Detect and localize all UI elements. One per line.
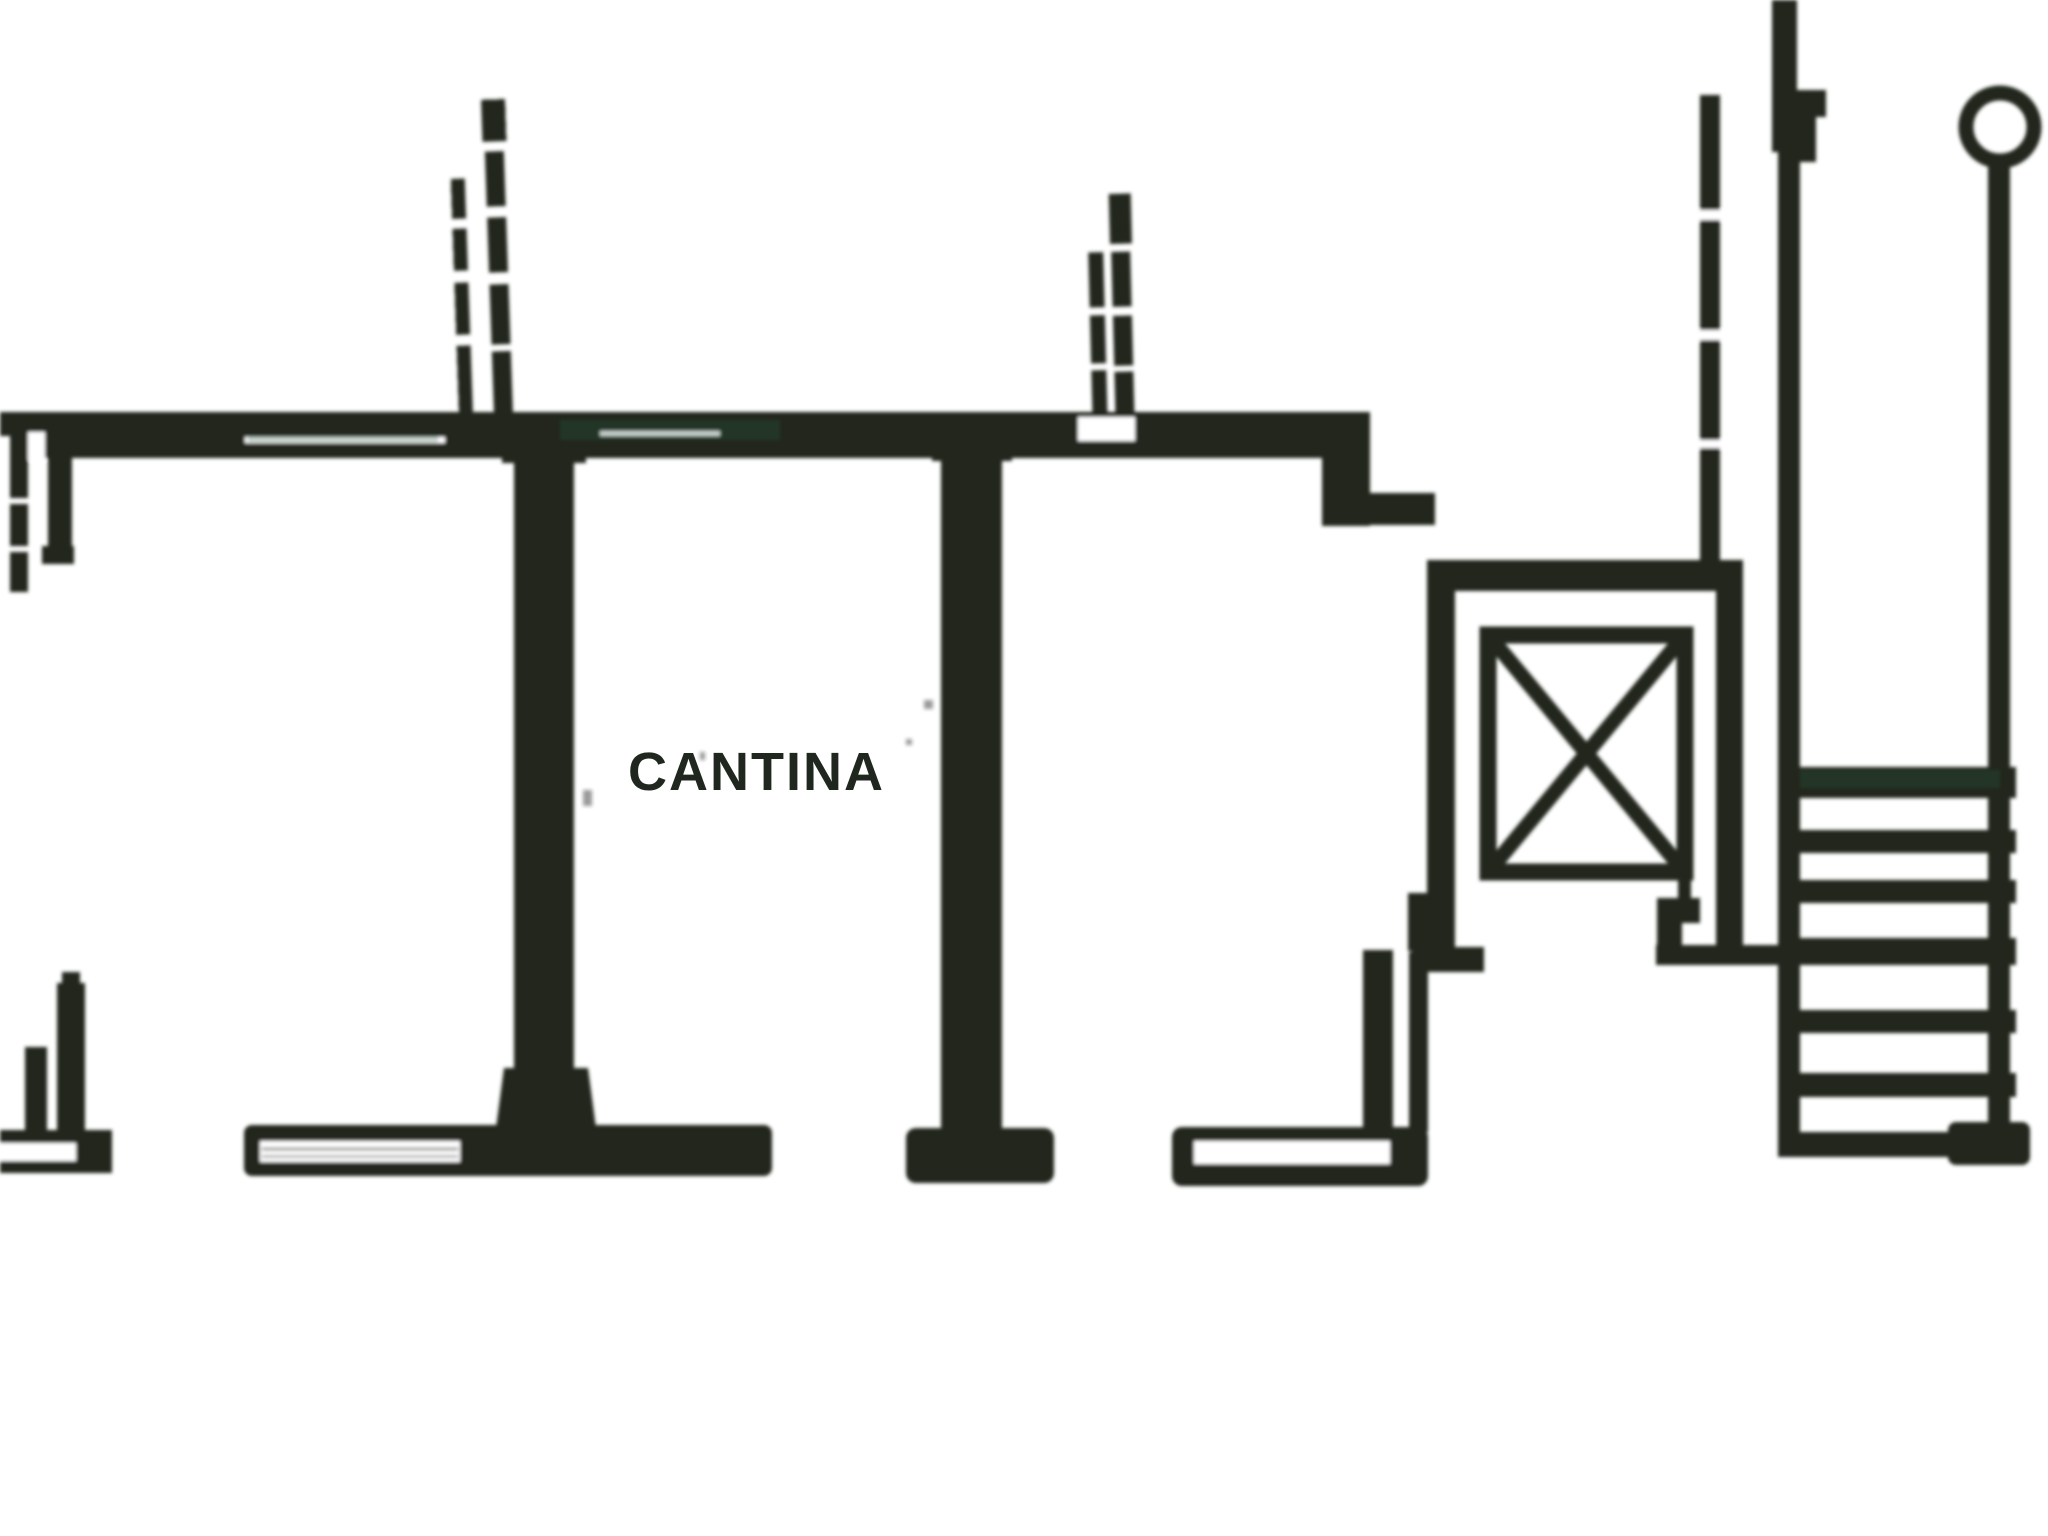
floor-plan-canvas: CANTINA — [0, 0, 2048, 1536]
paper-gaps — [0, 210, 1722, 1164]
wall-end-corner — [1322, 436, 1435, 526]
scanned-linework — [0, 0, 2034, 1186]
partition-wall-2 — [906, 413, 1054, 1183]
riser-dashed-lines-right — [1087, 193, 1137, 418]
newel-circle-icon — [1966, 93, 2034, 161]
bottom-left-stub — [0, 972, 112, 1173]
floor-plan-page: CANTINA — [0, 0, 2048, 1536]
plan-ink — [0, 0, 2030, 1186]
elevator-x-icon — [1488, 635, 1685, 872]
stairwell-upper-walls — [1700, 0, 2010, 1160]
riser-dashed-lines-left — [448, 99, 516, 421]
room-label: CANTINA — [628, 742, 885, 802]
